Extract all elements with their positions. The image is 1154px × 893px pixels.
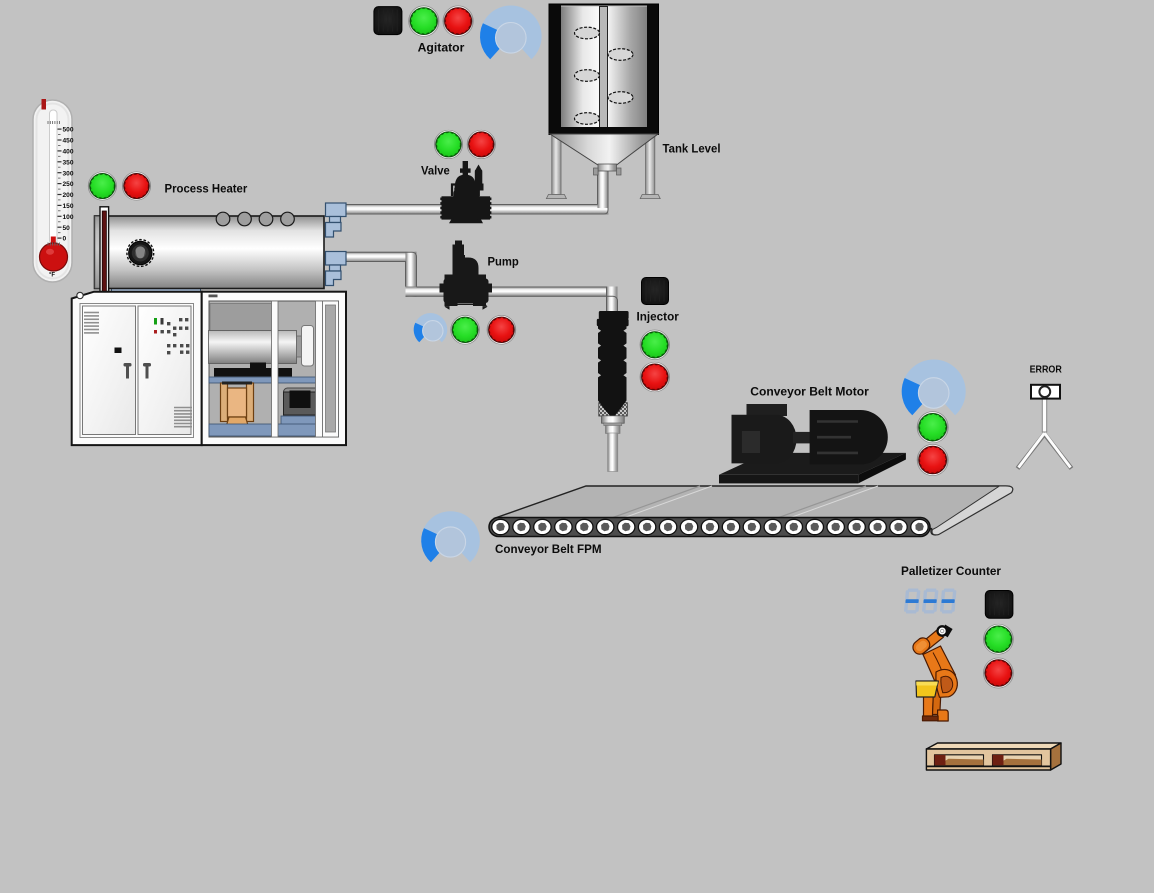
svg-text:Process Heater: Process Heater [165, 183, 248, 195]
svg-text:Pump: Pump [488, 256, 519, 268]
svg-text:50: 50 [63, 225, 71, 232]
svg-text:°F: °F [49, 273, 55, 279]
svg-text:ERROR: ERROR [1030, 364, 1063, 376]
svg-text:150: 150 [63, 203, 74, 210]
svg-text:Injector: Injector [637, 311, 680, 323]
svg-text:250: 250 [63, 181, 74, 188]
svg-text:100: 100 [63, 214, 74, 221]
svg-text:300: 300 [63, 170, 74, 177]
svg-text:450: 450 [63, 138, 74, 145]
svg-text:0: 0 [63, 236, 67, 243]
svg-text:Valve: Valve [421, 165, 450, 177]
svg-text:Tank Level: Tank Level [663, 144, 721, 156]
svg-text:Conveyor Belt FPM: Conveyor Belt FPM [495, 544, 602, 556]
svg-text:400: 400 [63, 149, 74, 156]
svg-text:Agitator: Agitator [418, 43, 465, 55]
svg-text:Conveyor Belt Motor: Conveyor Belt Motor [750, 387, 869, 399]
svg-text:500: 500 [63, 127, 74, 134]
svg-text:200: 200 [63, 192, 74, 199]
svg-text:350: 350 [63, 159, 74, 166]
svg-text:Palletizer Counter: Palletizer Counter [901, 566, 1002, 578]
